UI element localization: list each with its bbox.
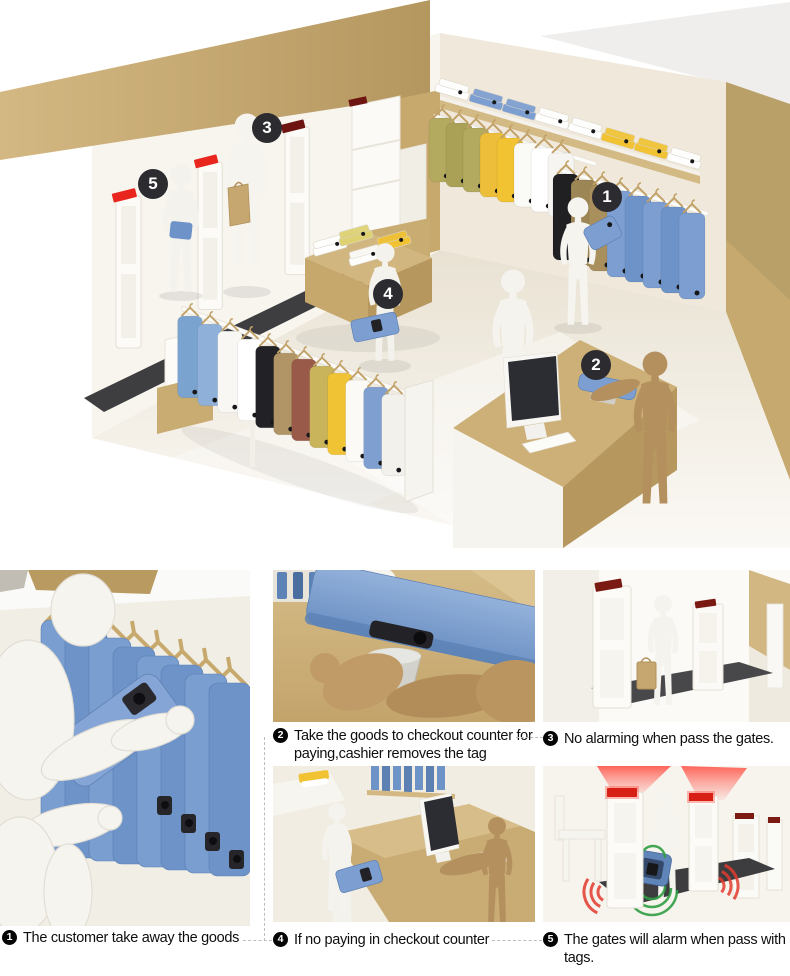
step-2-text: Take the goods to checkout counter for p… [294, 727, 535, 763]
scene-step-badge-5: 5 [138, 169, 168, 199]
panel-step-2-image [273, 570, 535, 722]
panel-step-5-image [543, 766, 790, 922]
security-gate [194, 154, 222, 309]
gate-partial [767, 604, 783, 688]
security-gate [112, 188, 141, 348]
panel-step-3-image [543, 570, 790, 722]
security-gate-back [687, 791, 718, 891]
step-5-number-badge: 5 [543, 932, 558, 947]
shopping-bag [228, 184, 250, 226]
step-2-number-badge: 2 [273, 728, 288, 743]
connector-step2-step3 [516, 737, 543, 738]
step-3-text: No alarming when pass the gates. [564, 730, 774, 748]
connector-step2-step4 [264, 737, 265, 941]
caption-step-2: 2 Take the goods to checkout counter for… [273, 727, 535, 763]
scene-step-badge-3: 3 [252, 113, 282, 143]
scene-step-badge-2: 2 [581, 350, 611, 380]
security-gate-front [593, 578, 631, 708]
store-scene-illustration [0, 0, 790, 548]
security-tag [646, 862, 659, 876]
monitor-stand [524, 423, 547, 440]
security-gate-back [693, 599, 723, 690]
shopping-bag [637, 662, 656, 689]
scene-step-badge-4: 4 [373, 279, 403, 309]
security-gate-front [605, 786, 643, 908]
step-1-number-badge: 1 [2, 930, 17, 945]
scene-step-badge-1: 1 [592, 182, 622, 212]
step-1-text: The customer take away the goods [23, 929, 239, 947]
caption-step-3: 3 No alarming when pass the gates. [543, 730, 790, 748]
shadow [223, 286, 271, 298]
step-3-number-badge: 3 [543, 731, 558, 746]
caption-step-5: 5 The gates will alarm when pass with ta… [543, 931, 790, 967]
step-4-text: If no paying in checkout counter [294, 931, 489, 949]
shadow [159, 291, 203, 301]
connector-step4-step5 [492, 940, 542, 941]
step-4-number-badge: 4 [273, 932, 288, 947]
caption-step-1: 1 The customer take away the goods [2, 929, 252, 947]
store-scene: 1 2 3 4 5 [0, 0, 790, 548]
panel-step-1-image [0, 570, 250, 926]
panel-step-4-image [273, 766, 535, 922]
floor-rack-end-panel [405, 380, 433, 502]
security-gate [281, 119, 309, 274]
monitor-screen [508, 356, 559, 421]
carried-garment [169, 221, 193, 240]
shadow [359, 359, 411, 373]
shadow [554, 322, 602, 334]
connector-step1-step4 [243, 940, 272, 941]
security-gate-far [767, 817, 782, 890]
step-5-text: The gates will alarm when pass with tags… [564, 931, 790, 967]
